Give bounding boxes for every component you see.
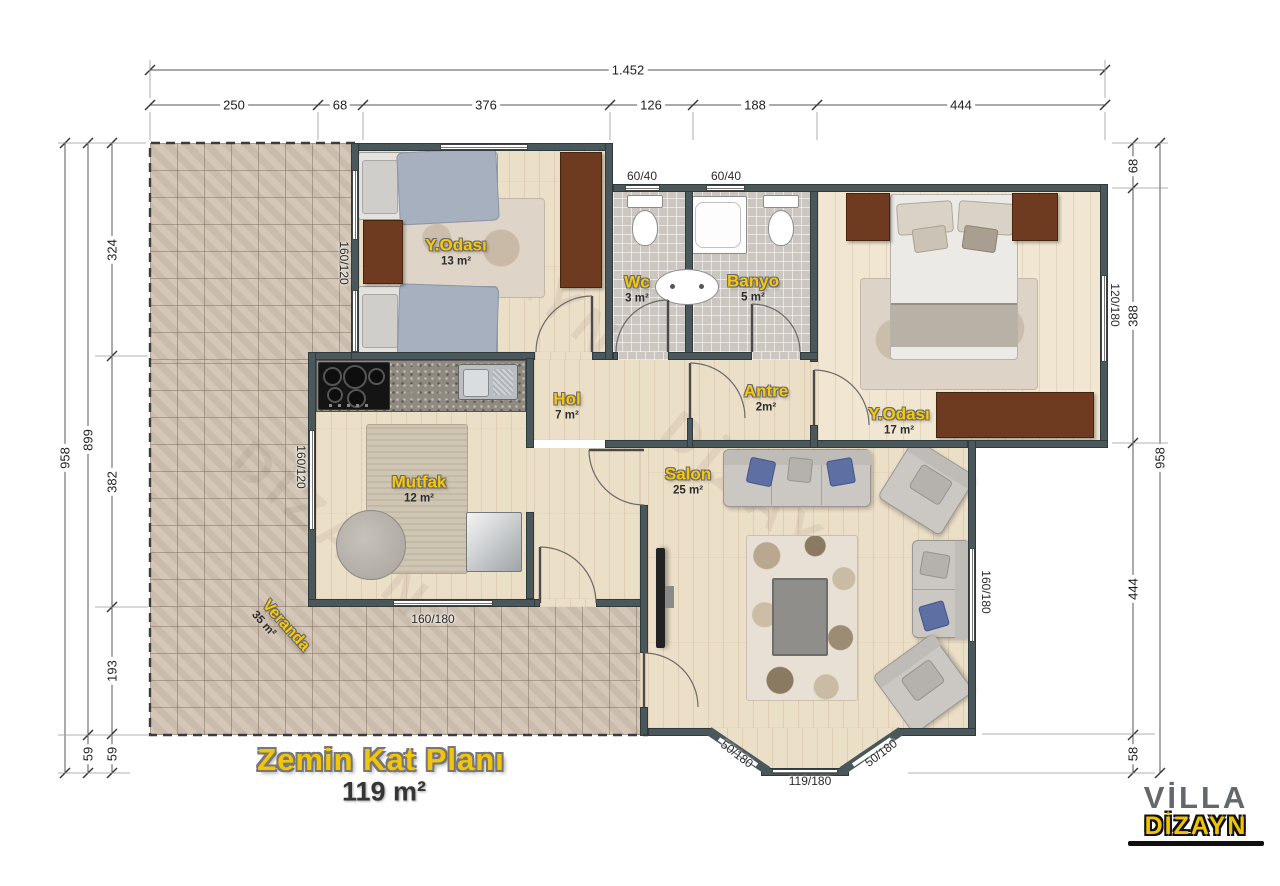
window bbox=[309, 430, 315, 530]
plan-title: Zemin Kat Planı bbox=[257, 742, 505, 778]
room-area: 13 m² bbox=[425, 255, 486, 268]
room-label-hol: Hol 7 m² bbox=[553, 390, 580, 421]
room-label-antre: Antre 2m² bbox=[744, 382, 788, 413]
cooktop bbox=[318, 362, 390, 410]
window bbox=[1101, 275, 1107, 362]
dim-label: 958 bbox=[1153, 444, 1168, 472]
wall-segment bbox=[898, 728, 976, 736]
wall-segment bbox=[668, 352, 752, 360]
plan-total-area: 119 m² bbox=[342, 777, 426, 808]
faucet bbox=[699, 284, 704, 289]
wall-segment bbox=[613, 352, 618, 360]
door-gap-floor bbox=[526, 448, 534, 512]
bed-cushion bbox=[961, 225, 998, 253]
sofa bbox=[723, 449, 871, 507]
door-gap-floor bbox=[640, 448, 648, 505]
window bbox=[706, 185, 745, 191]
cooktop-knobs bbox=[329, 404, 373, 407]
refrigerator bbox=[466, 512, 522, 572]
tv-mount bbox=[665, 586, 674, 608]
room-area: 3 m² bbox=[624, 292, 650, 305]
toilet-bowl bbox=[768, 210, 794, 246]
dim-label: 126 bbox=[637, 98, 665, 113]
wall-segment bbox=[534, 599, 540, 607]
window-label: 119/180 bbox=[789, 774, 832, 788]
window-label: 60/40 bbox=[711, 169, 741, 183]
room-name: Banyo bbox=[727, 272, 779, 291]
room-label-wc: Wc 3 m² bbox=[624, 273, 650, 304]
sofa-cushion bbox=[787, 457, 813, 483]
door-gap-floor bbox=[540, 599, 596, 607]
corridor-floor bbox=[534, 448, 640, 599]
room-area: 12 m² bbox=[392, 492, 447, 505]
wall-segment bbox=[640, 505, 648, 653]
loveseat-seam bbox=[913, 589, 955, 590]
dim-label: 58 bbox=[1126, 744, 1141, 764]
sink-basin bbox=[463, 369, 489, 397]
room-name: Mutfak bbox=[392, 473, 447, 492]
room-area: 2m² bbox=[744, 401, 788, 414]
wall-segment bbox=[810, 184, 818, 362]
dim-label: 958 bbox=[58, 444, 73, 472]
door-gap-floor bbox=[618, 352, 668, 360]
wardrobe bbox=[846, 193, 890, 241]
wardrobe bbox=[1012, 193, 1058, 241]
toilet-bowl bbox=[632, 210, 658, 246]
dim-label: 59 bbox=[81, 744, 96, 764]
window bbox=[440, 144, 528, 150]
room-name: Salon bbox=[665, 465, 711, 484]
bed-pillow bbox=[362, 294, 398, 348]
faucet bbox=[670, 284, 675, 289]
door-gap-floor bbox=[810, 362, 818, 425]
window-label: 160/120 bbox=[294, 445, 308, 488]
room-label-banyo: Banyo 5 m² bbox=[727, 272, 779, 303]
dim-label: 444 bbox=[947, 98, 975, 113]
kitchen-sink bbox=[458, 364, 518, 400]
wall-segment bbox=[526, 512, 534, 599]
dim-label: 444 bbox=[1126, 575, 1141, 603]
bed-duvet bbox=[397, 283, 499, 359]
toilet-tank bbox=[627, 195, 663, 208]
wall-segment bbox=[648, 728, 712, 736]
wall-segment bbox=[968, 440, 1108, 448]
wardrobe bbox=[560, 152, 602, 288]
dining-table bbox=[336, 510, 406, 580]
room-label-mutfak: Mutfak 12 m² bbox=[392, 473, 447, 504]
single-bed bbox=[358, 286, 498, 354]
room-area: 5 m² bbox=[727, 291, 779, 304]
sofa-pillow bbox=[746, 457, 777, 488]
window-label: 120/180 bbox=[1108, 283, 1122, 326]
wall-segment bbox=[687, 418, 693, 448]
nightstand bbox=[363, 220, 403, 284]
wall-segment bbox=[605, 440, 968, 448]
room-label-salon: Salon 25 m² bbox=[665, 465, 711, 496]
brand-logo: VİLLA DİZAYN bbox=[1128, 782, 1264, 846]
dim-label: 193 bbox=[105, 657, 120, 685]
dim-label-total-width: 1.452 bbox=[609, 63, 648, 78]
floor-plan: DİZAYN DİZAYN DİZAYN bbox=[0, 0, 1280, 886]
window-label: 60/40 bbox=[627, 169, 657, 183]
veranda-floor-mid bbox=[150, 360, 308, 607]
brand-logo-top: VİLLA bbox=[1128, 782, 1264, 813]
dim-label: 68 bbox=[330, 98, 350, 113]
dim-label: 376 bbox=[472, 98, 500, 113]
dim-label: 388 bbox=[1126, 302, 1141, 330]
burner bbox=[323, 367, 342, 386]
door-gap-floor bbox=[752, 352, 800, 360]
room-area: 7 m² bbox=[553, 409, 580, 422]
door-gap-floor bbox=[640, 653, 648, 707]
veranda-floor-upper bbox=[150, 143, 355, 360]
toilet-tank bbox=[763, 195, 799, 208]
wall-segment bbox=[810, 425, 818, 448]
single-bed bbox=[358, 152, 498, 220]
wall-segment bbox=[613, 184, 1108, 192]
dim-label: 250 bbox=[220, 98, 248, 113]
window-label: 160/120 bbox=[337, 241, 351, 284]
dim-label: 59 bbox=[105, 744, 120, 764]
room-name: Antre bbox=[744, 382, 788, 401]
window bbox=[352, 170, 358, 240]
room-name: Hol bbox=[553, 390, 580, 409]
window bbox=[625, 185, 660, 191]
double-sink-vanity bbox=[655, 269, 719, 305]
dim-label: 899 bbox=[81, 426, 96, 454]
loveseat-pillow bbox=[918, 600, 950, 632]
sink-drainer bbox=[493, 369, 513, 395]
window-label: 160/180 bbox=[411, 612, 454, 626]
bed-pillow bbox=[362, 160, 398, 214]
room-name: Wc bbox=[624, 273, 650, 292]
brand-logo-underline bbox=[1128, 841, 1264, 846]
double-bed bbox=[890, 194, 1018, 360]
dim-label: 382 bbox=[105, 468, 120, 496]
brand-logo-bottom: DİZAYN bbox=[1128, 813, 1264, 839]
room-name: Y.Odası bbox=[425, 236, 486, 255]
wall-segment bbox=[526, 358, 534, 448]
window bbox=[352, 290, 358, 352]
bed-cushion bbox=[911, 225, 948, 253]
sofa-pillow bbox=[826, 457, 856, 487]
wall-segment bbox=[800, 352, 818, 360]
room-name: Y.Odası bbox=[868, 405, 929, 424]
loveseat-cushion bbox=[919, 551, 951, 579]
shower-inner bbox=[695, 202, 741, 248]
coffee-table bbox=[772, 578, 828, 656]
wall-segment bbox=[351, 352, 535, 360]
window bbox=[393, 600, 493, 606]
dim-label: 324 bbox=[105, 236, 120, 264]
sofa-seam bbox=[821, 465, 822, 505]
shower-tray bbox=[689, 196, 747, 254]
dim-label: 188 bbox=[741, 98, 769, 113]
door-gap-floor bbox=[535, 352, 592, 360]
room-label-bedroom1: Y.Odası 13 m² bbox=[425, 236, 486, 267]
room-area: 25 m² bbox=[665, 484, 711, 497]
tv-panel bbox=[656, 548, 665, 648]
burner bbox=[368, 368, 385, 385]
window-label: 160/180 bbox=[979, 570, 993, 613]
room-area: 17 m² bbox=[868, 424, 929, 437]
room-label-bedroom2: Y.Odası 17 m² bbox=[868, 405, 929, 436]
burner bbox=[327, 387, 343, 403]
wall-segment bbox=[605, 143, 613, 360]
burner bbox=[343, 365, 367, 389]
wall-segment bbox=[640, 707, 648, 736]
window bbox=[969, 548, 975, 642]
dim-label: 68 bbox=[1126, 156, 1141, 176]
loveseat bbox=[912, 540, 970, 638]
wardrobe bbox=[936, 392, 1094, 438]
bed-duvet bbox=[396, 147, 500, 225]
veranda-floor-bottom bbox=[150, 607, 648, 735]
bed-blanket bbox=[891, 303, 1017, 347]
